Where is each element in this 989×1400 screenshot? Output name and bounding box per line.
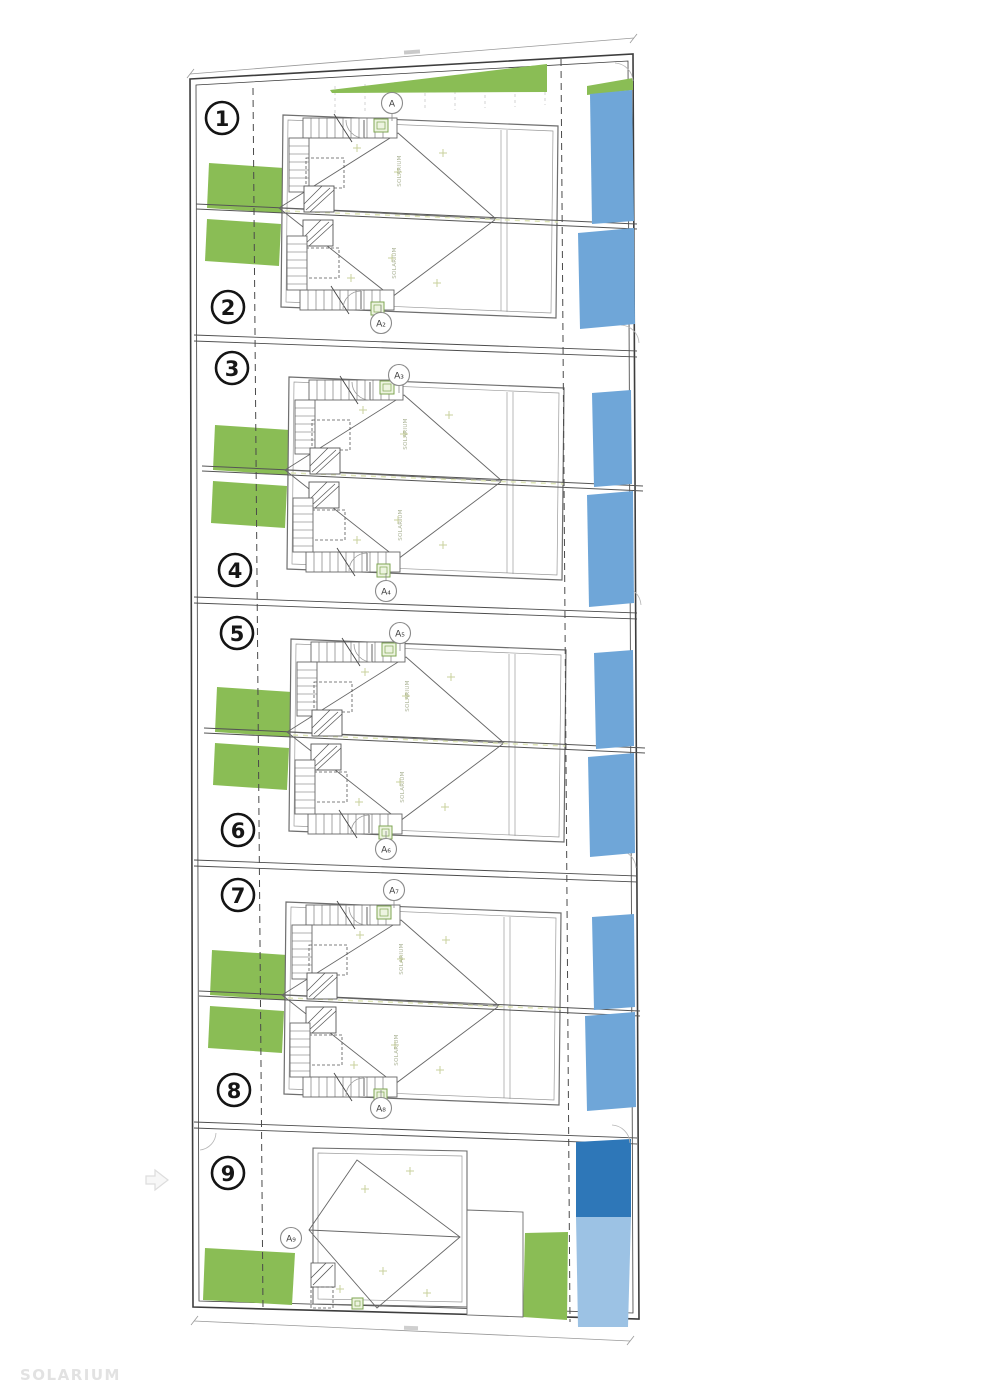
pool-unit-9-deep xyxy=(576,1139,631,1217)
section-marker-a9: A₉ xyxy=(281,1228,302,1249)
unit-number: 8 xyxy=(227,1079,242,1103)
dimension-label-smudge xyxy=(404,49,420,54)
section-marker-label: A xyxy=(389,100,396,110)
section-marker-label: A₄ xyxy=(381,588,391,598)
section-marker-label: A₉ xyxy=(286,1235,296,1245)
shaft-hatched xyxy=(311,1263,335,1287)
arrow-right-icon xyxy=(146,1170,168,1190)
pool-unit-6 xyxy=(588,753,635,857)
section-marker-label: A₇ xyxy=(389,887,399,897)
unit-badge-5: 5 xyxy=(221,617,253,649)
unit-number: 4 xyxy=(228,559,243,583)
unit-badge-7: 7 xyxy=(222,879,254,911)
duplex-block-units-3-4 xyxy=(202,325,643,580)
unit-number: 7 xyxy=(231,884,246,908)
pool-unit-4 xyxy=(587,491,634,607)
section-marker-label: A₅ xyxy=(395,630,405,640)
section-marker-label: A₃ xyxy=(394,372,404,382)
unit-number: 3 xyxy=(225,357,240,381)
watermark-text: SOLARIUM xyxy=(20,1366,121,1384)
pool-unit-2 xyxy=(578,228,635,329)
unit-badge-3: 3 xyxy=(216,352,248,384)
unit-number: 2 xyxy=(221,296,236,320)
unit-9-block xyxy=(200,1125,630,1320)
section-marker-a: A xyxy=(382,93,403,122)
pool-unit-7 xyxy=(592,914,635,1010)
garden-unit-9-right xyxy=(523,1232,568,1320)
roof-label-unit-7: SOLARIUM xyxy=(399,943,405,974)
garden-unit-9-left xyxy=(203,1248,295,1305)
pool-unit-1 xyxy=(590,90,634,224)
pool-unit-3 xyxy=(592,390,632,487)
roof-label-unit-2: SOLARIUM xyxy=(392,247,398,278)
unit-badge-8: 8 xyxy=(218,1074,250,1106)
unit-number: 9 xyxy=(221,1162,236,1186)
roof-label-unit-6: SOLARIUM xyxy=(400,771,406,802)
building-outline xyxy=(313,1148,467,1307)
dimension-line-top xyxy=(187,34,637,78)
unit-badge-2: 2 xyxy=(212,291,244,323)
roof-label-unit-4: SOLARIUM xyxy=(398,509,404,540)
pool-unit-9-shallow xyxy=(576,1217,631,1327)
unit-badge-9: 9 xyxy=(212,1157,244,1189)
section-marker-label: A₂ xyxy=(376,320,386,330)
pools xyxy=(576,90,636,1327)
section-marker-a7: A₇ xyxy=(384,880,405,909)
unit-number: 5 xyxy=(230,622,245,646)
pool-unit-5 xyxy=(594,650,634,749)
unit-badge-6: 6 xyxy=(222,814,254,846)
pool-unit-8 xyxy=(585,1012,636,1111)
roof-label-unit-8: SOLARIUM xyxy=(394,1034,400,1065)
building-wing xyxy=(467,1210,523,1317)
site-plan-drawing: SOLARIUM SOLARIUM SOLARIUM SOLARIUM SOLA… xyxy=(0,0,989,1400)
section-marker-label: A₈ xyxy=(376,1105,386,1115)
section-marker-label: A₆ xyxy=(381,846,391,856)
unit-number: 6 xyxy=(231,819,246,843)
roof-label-unit-1: SOLARIUM xyxy=(397,155,403,186)
unit-badge-1: 1 xyxy=(206,102,238,134)
duplex-block-units-7-8 xyxy=(199,850,640,1105)
roof-label-unit-3: SOLARIUM xyxy=(403,418,409,449)
duplex-block-units-1-2 xyxy=(196,63,637,318)
unit-number: 1 xyxy=(215,107,230,131)
duplex-block-units-5-6 xyxy=(204,587,645,842)
dimension-label-smudge xyxy=(404,1326,418,1330)
gate-swing-arc xyxy=(200,1133,216,1150)
unit-badge-4: 4 xyxy=(219,554,251,586)
site-plan-sheet: SOLARIUM SOLARIUM SOLARIUM SOLARIUM SOLA… xyxy=(0,0,989,1400)
skylight-box xyxy=(352,1298,363,1309)
roof-label-unit-5: SOLARIUM xyxy=(405,680,411,711)
green-strip-top xyxy=(330,64,547,93)
dimension-line-bottom xyxy=(191,1316,634,1345)
